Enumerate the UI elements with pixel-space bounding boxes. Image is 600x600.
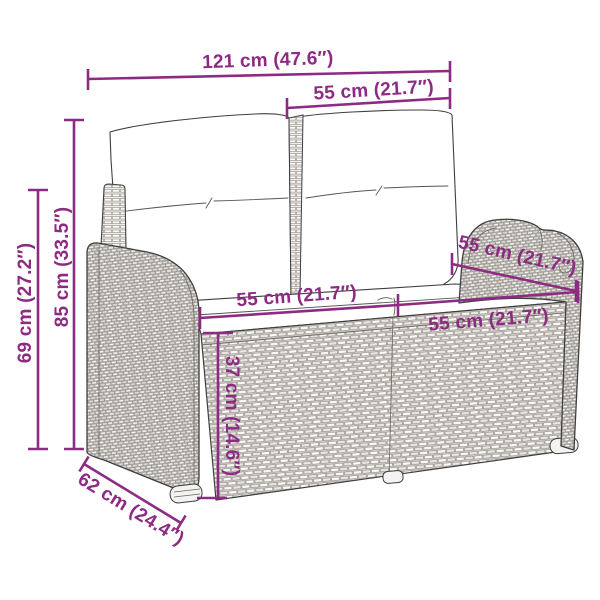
dim-seat-height-label: 37 cm (14.6″) bbox=[221, 356, 242, 477]
dim-armrest-height-label: 69 cm (27.2″) bbox=[15, 243, 36, 364]
back-post-left bbox=[101, 184, 126, 249]
dim-overall-height-label: 85 cm (33.5″) bbox=[52, 207, 73, 328]
product-dimension-diagram: 121 cm (47.6″) 55 cm (21.7″) 85 cm (33.5… bbox=[0, 0, 600, 600]
dim-overall-width-label: 121 cm (47.6″) bbox=[202, 48, 334, 74]
dim-overall-height: 85 cm (33.5″) bbox=[52, 120, 84, 449]
bench-base bbox=[201, 301, 576, 500]
bench-illustration bbox=[87, 110, 583, 504]
armrest-left bbox=[87, 243, 199, 492]
foot-middle bbox=[383, 470, 404, 484]
back-cushion-right bbox=[299, 110, 458, 297]
dim-armrest-height: 69 cm (27.2″) bbox=[15, 190, 48, 449]
cushion-gap bbox=[289, 115, 303, 296]
bench-dimension-svg: 121 cm (47.6″) 55 cm (21.7″) 85 cm (33.5… bbox=[0, 0, 600, 600]
